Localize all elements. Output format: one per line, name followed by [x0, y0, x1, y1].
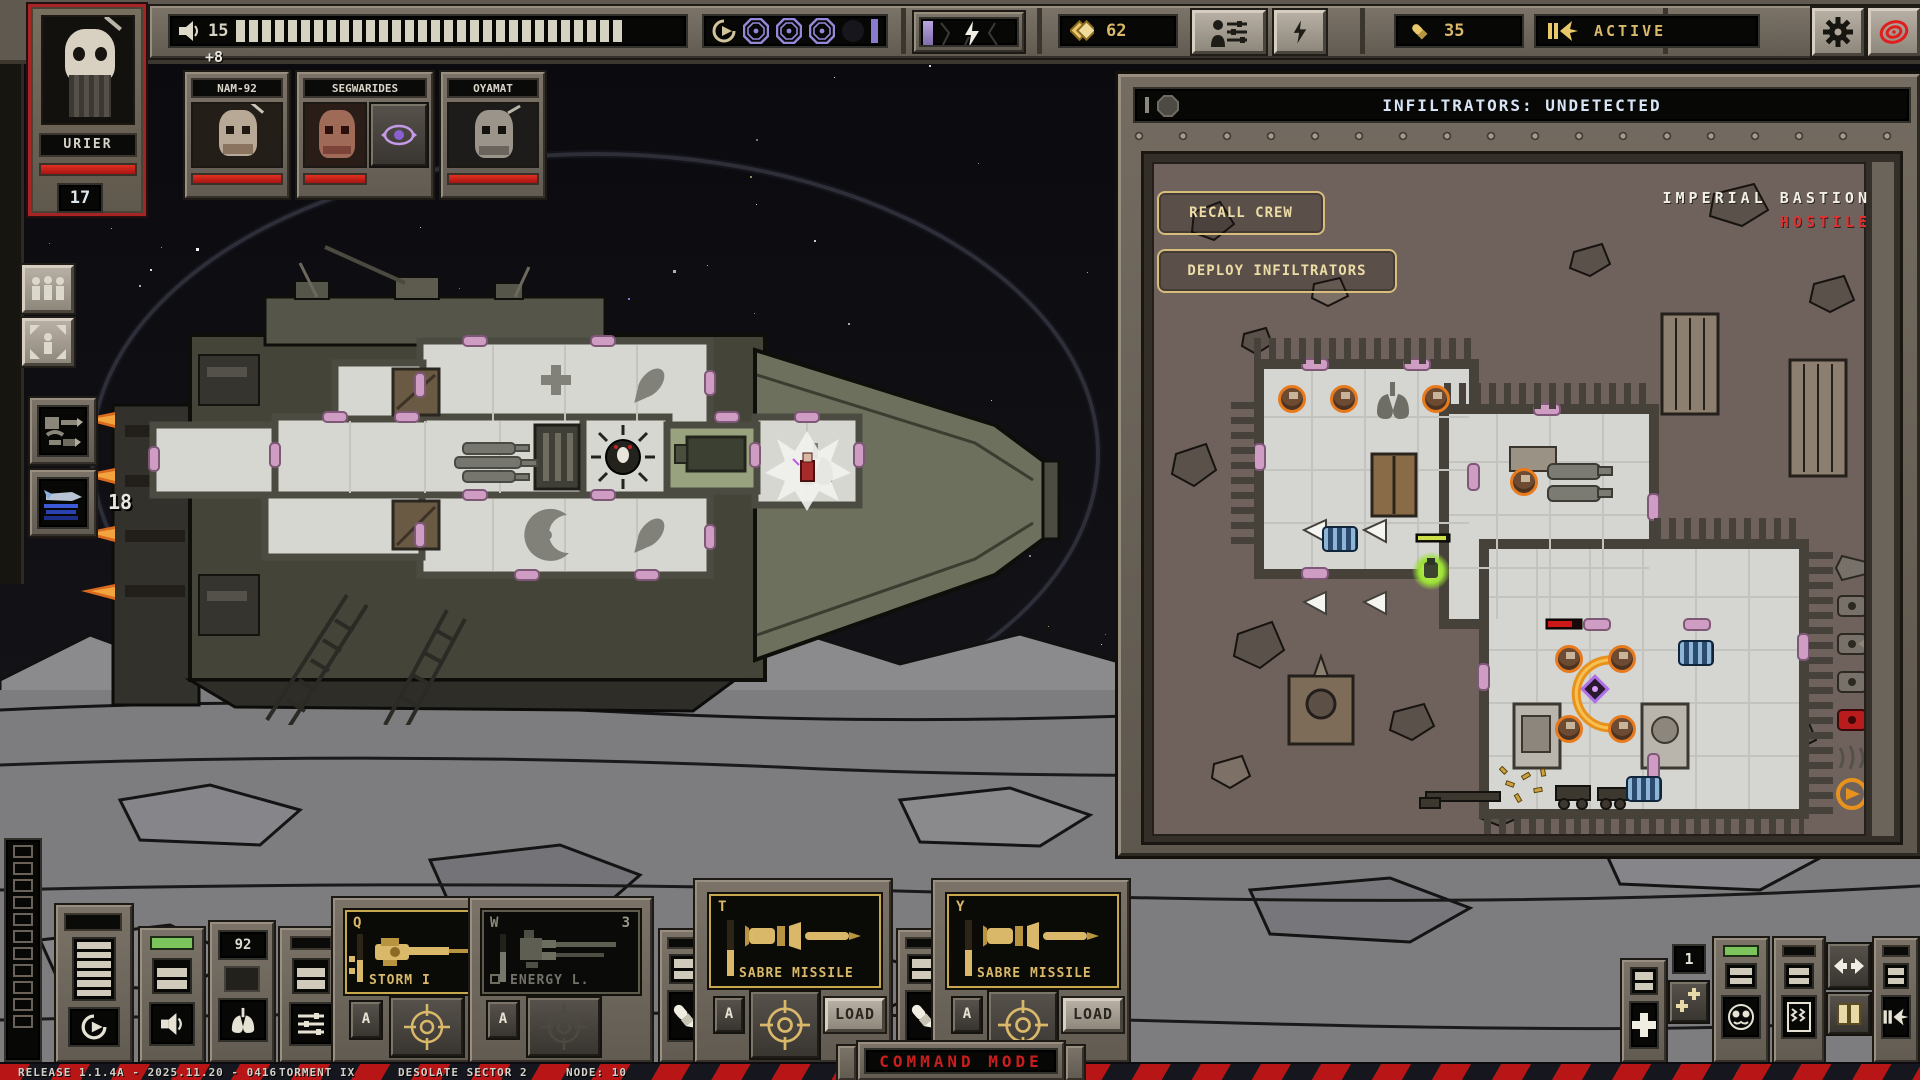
warp-bar	[871, 19, 878, 43]
infiltration-panel: INFILTRATORS: UNDETECTED	[1118, 74, 1920, 856]
weapon-art-missile	[745, 918, 875, 954]
reactor-console[interactable]	[56, 905, 132, 1062]
enemy-unit[interactable]	[1422, 385, 1450, 413]
enemy-unit[interactable]	[1608, 645, 1636, 673]
weapon-screen[interactable]: Y SABRE MISSILE	[947, 894, 1119, 988]
location-name: IMPERIAL BASTION	[1663, 189, 1872, 207]
morale-display: 15	[168, 14, 688, 48]
deploy-zone-button[interactable]	[22, 318, 74, 366]
cannon-stack-icon	[455, 443, 537, 482]
add-squad-button[interactable]	[1670, 982, 1708, 1022]
speaker-icon	[178, 21, 200, 41]
crew-name: SEGWARIDES	[303, 78, 427, 98]
autofire-button[interactable]: A	[351, 1002, 381, 1038]
header-marker	[1145, 97, 1149, 113]
crew-roster-button[interactable]	[22, 265, 74, 313]
weapon-slot-w: W 3 ENERGY L. A	[470, 898, 652, 1062]
crew-portrait	[303, 102, 367, 168]
loadout-button[interactable]	[30, 398, 96, 464]
engine-power-value: 18	[108, 490, 132, 514]
crew-card[interactable]: SEGWARIDES	[297, 72, 433, 198]
turbine-objective[interactable]	[1626, 776, 1662, 802]
battlement	[1654, 518, 1804, 544]
deploy-infiltrators-button[interactable]: DEPLOY INFILTRATORS	[1157, 249, 1397, 293]
crew-card[interactable]: OYAMAT	[441, 72, 545, 198]
enemy-unit[interactable]	[1510, 468, 1538, 496]
power-button[interactable]	[1274, 10, 1326, 54]
commander-health-bar	[39, 163, 137, 176]
missile-ammo-icon	[673, 1001, 695, 1031]
weapon-screen[interactable]: W 3 ENERGY L.	[482, 910, 640, 994]
engine-thruster-icon	[1548, 19, 1578, 43]
difficulty-label: TORMENT IX	[279, 1066, 355, 1079]
star	[929, 65, 931, 67]
crosshair-icon	[404, 1004, 450, 1050]
scrap-value: 62	[1106, 21, 1126, 41]
command-mode-panel: COMMAND MODE	[858, 1042, 1064, 1080]
shell-icon	[1408, 20, 1430, 42]
crew-name: OYAMAT	[447, 78, 539, 98]
weapon-screen[interactable]: T SABRE MISSILE	[709, 894, 881, 988]
oxygen-console[interactable]: 92	[210, 922, 274, 1062]
weapon-name: SABRE MISSILE	[977, 966, 1092, 981]
equipment-icon	[43, 413, 83, 449]
panel-rail	[1870, 162, 1894, 836]
crew-loadout-button[interactable]	[1192, 10, 1266, 54]
star	[756, 139, 758, 141]
ammo-display: 35	[1394, 14, 1524, 48]
manual-button[interactable]	[1828, 994, 1870, 1034]
hexagon-icon	[1157, 95, 1179, 117]
crew-loadout-icon	[1209, 17, 1249, 47]
speaker-icon	[159, 1013, 185, 1035]
autofire-button[interactable]: A	[953, 998, 981, 1032]
morale-segments	[236, 20, 622, 42]
weapon-hotkey: T	[718, 899, 726, 915]
weapon-art-missile	[983, 918, 1113, 954]
command-mode-label: COMMAND MODE	[864, 1048, 1058, 1074]
warp-charges-display	[702, 14, 888, 48]
star	[978, 163, 979, 164]
weapon-name: STORM I	[369, 973, 431, 988]
left-right-arrows-icon	[1834, 958, 1864, 974]
gear-icon	[1823, 17, 1853, 47]
load-button[interactable]: LOAD	[825, 998, 885, 1032]
roster-turbine-icon	[1838, 634, 1866, 654]
scroll-document-icon	[1787, 1002, 1811, 1032]
battlement	[1254, 338, 1479, 364]
psy-ability-button[interactable]	[371, 104, 427, 166]
crosshair-icon	[541, 1004, 587, 1050]
enemy-unit[interactable]	[1608, 715, 1636, 743]
battlement	[1484, 819, 1804, 836]
crew-bonus-label: +8	[205, 48, 223, 66]
warp-charge-full	[809, 18, 835, 44]
roster-turbine-icon	[1838, 672, 1866, 692]
star	[750, 176, 752, 178]
red-spiral-icon	[1878, 18, 1910, 46]
recall-crew-button[interactable]: RECALL CREW	[1157, 191, 1325, 235]
star	[834, 77, 835, 78]
battlement	[1809, 549, 1833, 814]
commander-name: URIER	[39, 133, 137, 157]
warp-charge-full	[743, 18, 769, 44]
turbine-objective[interactable]	[1322, 526, 1358, 552]
skull-face-icon	[1726, 1002, 1756, 1032]
squad-count-display: 1	[1672, 944, 1706, 974]
recall-arrow-icon	[81, 1014, 107, 1040]
turbine-objective[interactable]	[1678, 640, 1714, 666]
command-mode-frame	[838, 1046, 856, 1080]
weapon-slot-y: Y SABRE MISSILE A LOAD	[933, 880, 1129, 1062]
star	[1435, 72, 1436, 73]
sliders-icon	[298, 1012, 324, 1036]
engine-console[interactable]	[1874, 938, 1918, 1062]
reinforce-console[interactable]	[1622, 960, 1666, 1062]
weapon-name: ENERGY L.	[510, 973, 589, 988]
roster-claw-icon	[1840, 746, 1863, 769]
diamond-icon	[1070, 20, 1094, 42]
engines-button[interactable]	[30, 470, 96, 536]
crew-portrait	[191, 102, 283, 168]
location-status: HOSTILE	[1780, 213, 1871, 231]
panel-header-title: INFILTRATORS: UNDETECTED	[1382, 96, 1661, 115]
ammo-value: 35	[1444, 21, 1464, 41]
load-button[interactable]: LOAD	[1063, 998, 1123, 1032]
star	[49, 243, 50, 244]
player-ship[interactable]	[80, 225, 1095, 725]
target-button[interactable]	[391, 998, 463, 1056]
ship-thrust-icon	[42, 484, 84, 522]
engine-thruster-icon	[1883, 1007, 1909, 1027]
morale-value: 15	[208, 21, 228, 41]
release-label: RELEASE 1.1.4A - 2025.11.20 - 0416	[18, 1066, 277, 1079]
battery-indicator	[914, 12, 1024, 52]
engine-status-display: ACTIVE	[1534, 14, 1760, 48]
panel-header: INFILTRATORS: UNDETECTED	[1133, 87, 1911, 123]
lungs-icon	[230, 1007, 256, 1033]
weapon-slot-t: T SABRE MISSILE A LOAD	[695, 880, 891, 1062]
bastion-turret	[1289, 656, 1353, 744]
roster-ship-icon	[1836, 556, 1866, 580]
warp-charge-full	[776, 18, 802, 44]
enemy-unit[interactable]	[1278, 385, 1306, 413]
alien-creature[interactable]	[591, 425, 655, 489]
warp-charge-empty	[842, 20, 864, 42]
node-label: NODE: 10	[566, 1066, 627, 1079]
crew-health-bar	[447, 173, 539, 185]
swap-view-button[interactable]	[1828, 944, 1870, 988]
target-button[interactable]	[528, 998, 600, 1056]
left-machinery-strip	[0, 64, 24, 584]
crew-name: NAM-92	[191, 78, 283, 98]
rivet-strip	[1129, 129, 1915, 147]
crew-portrait	[447, 102, 539, 168]
enemy-unit[interactable]	[1555, 645, 1583, 673]
morale-console[interactable]	[1714, 938, 1768, 1062]
weapon-hotkey: W	[490, 915, 498, 931]
lightning-bolt-icon	[1292, 18, 1308, 46]
infiltrator-unit[interactable]	[1412, 552, 1450, 590]
commander-value: 17	[57, 183, 103, 213]
oxygen-value: 92	[218, 930, 268, 960]
autofire-button[interactable]: A	[488, 1002, 518, 1038]
weapon-art-laser	[514, 928, 632, 970]
crew-health-bar	[303, 173, 367, 185]
log-console[interactable]	[1774, 938, 1824, 1062]
recall-arrow-icon	[712, 19, 736, 43]
book-pages-icon	[1836, 1002, 1862, 1026]
plus-icon	[1632, 1013, 1656, 1037]
sector-label: DESOLATE SECTOR 2	[398, 1066, 528, 1079]
psy-eye-icon	[379, 122, 419, 148]
scrap-display: 62	[1058, 14, 1178, 48]
missile-ammo-icon	[911, 1001, 933, 1031]
battlement	[1444, 383, 1654, 409]
autofire-button[interactable]: A	[715, 998, 743, 1032]
expand-arrows-icon	[30, 325, 66, 359]
settings-button[interactable]	[1812, 8, 1864, 56]
crew-card[interactable]: NAM-92	[185, 72, 289, 198]
enemy-unit[interactable]	[1330, 385, 1358, 413]
roster-turbine-destroyed-icon	[1838, 710, 1866, 730]
commander-card[interactable]: URIER 17	[28, 4, 146, 216]
weapon-name: SABRE MISSILE	[739, 966, 854, 981]
top-bar: 15 62	[150, 6, 1920, 58]
engine-status-label: ACTIVE	[1594, 22, 1666, 40]
crew-health-bar	[191, 173, 283, 185]
battlement	[1231, 394, 1255, 544]
weapon-hotkey: Y	[956, 899, 964, 915]
commander-portrait	[41, 15, 135, 125]
alert-button[interactable]	[1868, 8, 1920, 56]
double-plus-icon	[1674, 986, 1704, 1016]
command-mode-frame	[1066, 1046, 1084, 1080]
crosshair-icon	[760, 1000, 810, 1050]
comms-console[interactable]	[140, 928, 204, 1062]
crew-icon	[30, 275, 66, 303]
roster-turbine-icon	[1838, 596, 1866, 616]
enemy-unit[interactable]	[1555, 715, 1583, 743]
status-square-column	[4, 838, 42, 1062]
roster-recall-icon[interactable]	[1838, 780, 1866, 808]
target-button[interactable]	[751, 992, 819, 1058]
star	[756, 204, 757, 205]
weapon-hotkey: Q	[353, 915, 361, 931]
